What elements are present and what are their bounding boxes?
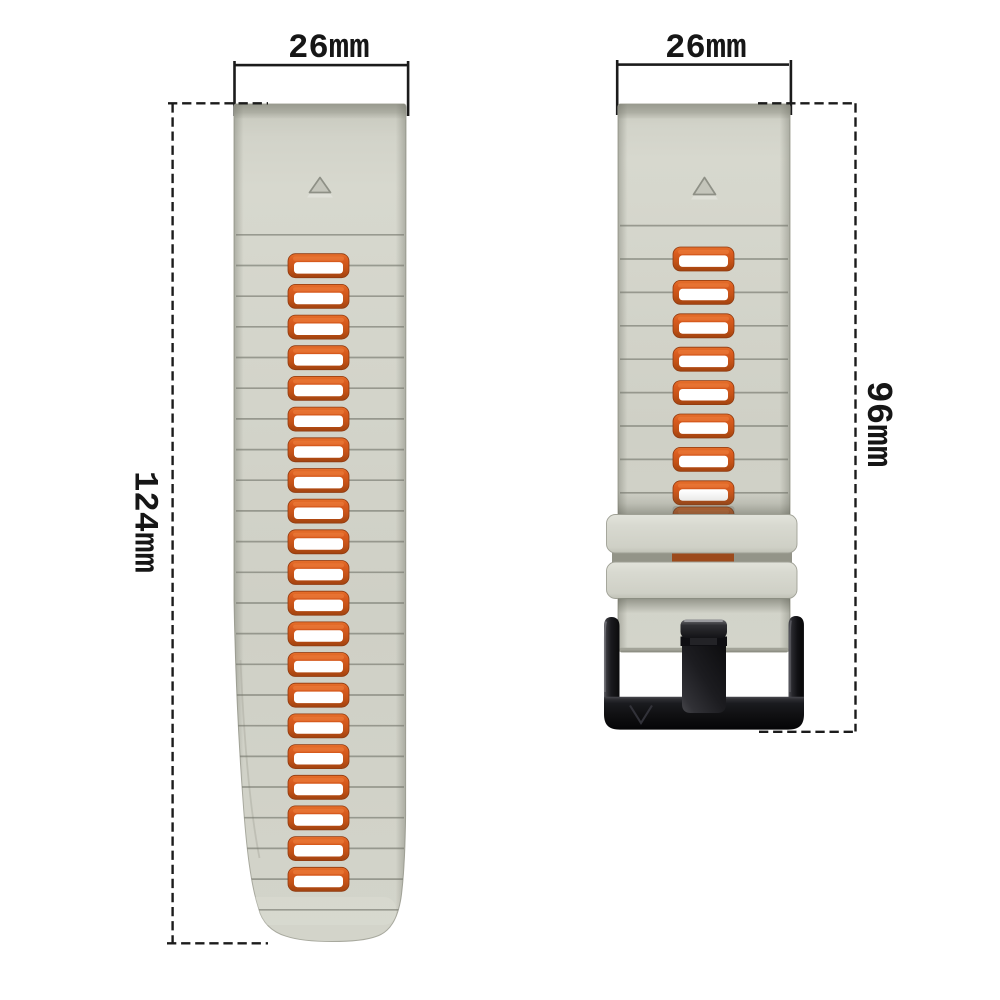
svg-text:96mm: 96mm [857, 381, 898, 467]
svg-text:124mm: 124mm [125, 471, 163, 573]
svg-text:26mm: 26mm [665, 30, 747, 68]
svg-text:26mm: 26mm [288, 30, 370, 68]
